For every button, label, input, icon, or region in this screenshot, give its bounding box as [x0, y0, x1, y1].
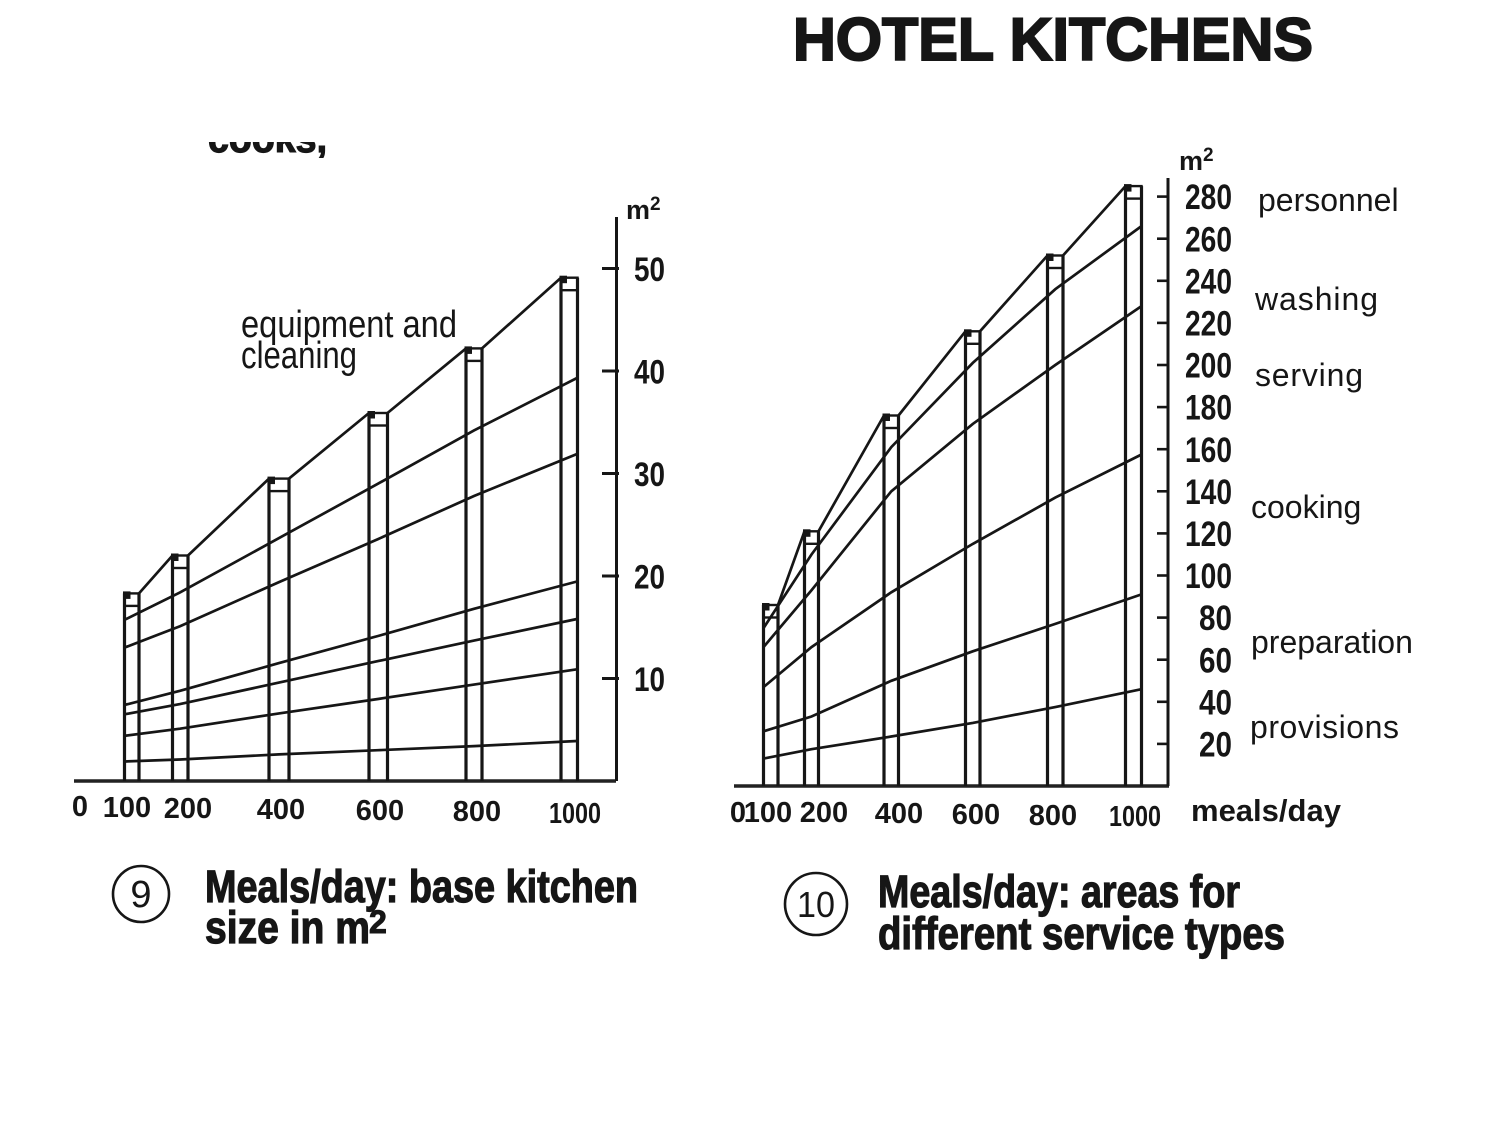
svg-text:160: 160 [1185, 431, 1232, 470]
svg-text:180: 180 [1185, 389, 1232, 428]
svg-text:HOTEL KITCHENS: HOTEL KITCHENS [793, 6, 1313, 73]
svg-text:20: 20 [1199, 726, 1232, 765]
svg-text:600: 600 [952, 799, 1000, 831]
svg-text:240: 240 [1185, 262, 1232, 301]
svg-text:cooking: cooking [1251, 489, 1361, 525]
svg-text:200: 200 [800, 797, 848, 829]
svg-text:40: 40 [1199, 683, 1232, 722]
svg-text:100: 100 [103, 792, 151, 824]
svg-text:140: 140 [1185, 473, 1232, 512]
svg-text:120: 120 [1185, 515, 1232, 554]
svg-text:provisions: provisions [1250, 709, 1399, 745]
svg-text:m2: m2 [1179, 145, 1214, 176]
svg-text:meals/day: meals/day [1191, 793, 1342, 828]
svg-text:cleaning: cleaning [241, 335, 357, 377]
svg-text:size in m: size in m [205, 902, 370, 953]
svg-text:50: 50 [634, 251, 665, 289]
svg-text:2: 2 [369, 904, 387, 940]
svg-text:1000: 1000 [1109, 801, 1161, 833]
svg-text:80: 80 [1199, 599, 1232, 638]
svg-text:10: 10 [634, 661, 665, 699]
svg-text:280: 280 [1185, 178, 1232, 217]
svg-text:20: 20 [634, 558, 665, 596]
svg-text:200: 200 [1185, 347, 1232, 386]
svg-text:200: 200 [164, 793, 212, 825]
svg-text:40: 40 [634, 353, 665, 391]
svg-text:personnel: personnel [1258, 182, 1399, 218]
svg-text:different service types: different service types [878, 908, 1285, 959]
svg-text:60: 60 [1199, 641, 1232, 680]
svg-text:220: 220 [1185, 305, 1232, 344]
svg-text:100: 100 [1185, 557, 1232, 596]
svg-text:9: 9 [130, 874, 151, 916]
svg-text:0: 0 [72, 791, 88, 823]
svg-text:serving: serving [1255, 357, 1363, 393]
svg-text:1000: 1000 [549, 798, 601, 830]
svg-text:400: 400 [257, 794, 305, 826]
svg-text:800: 800 [453, 796, 501, 828]
svg-text:400: 400 [875, 798, 923, 830]
svg-text:cooks,: cooks, [208, 117, 327, 161]
svg-text:washing: washing [1254, 281, 1378, 317]
svg-text:30: 30 [634, 456, 665, 494]
svg-text:100: 100 [744, 797, 792, 829]
svg-text:10: 10 [797, 884, 835, 925]
svg-text:600: 600 [356, 795, 404, 827]
svg-text:260: 260 [1185, 220, 1232, 259]
svg-text:m2: m2 [626, 194, 661, 225]
svg-text:preparation: preparation [1251, 624, 1413, 660]
svg-text:800: 800 [1029, 800, 1077, 832]
